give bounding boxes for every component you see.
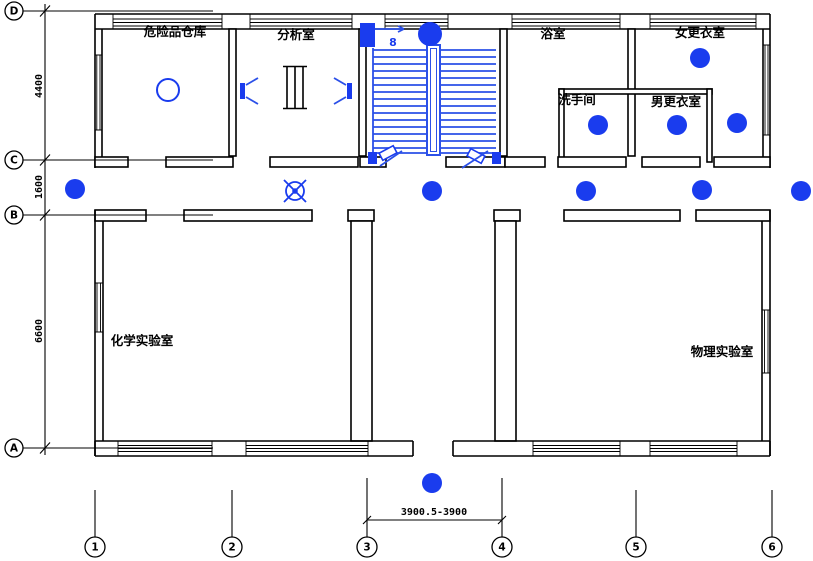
exterior-right-wall-upper: [763, 14, 770, 168]
room-label-women-locker: 女更衣室: [675, 25, 726, 40]
axis-col-label: 4: [498, 542, 505, 554]
pendant-lamp-circle: [157, 79, 179, 101]
room-label-analysis-room: 分析室: [277, 27, 315, 42]
axis-row-label: B: [10, 210, 18, 222]
exterior-left-wall-lower: [95, 210, 103, 456]
panel-circuit-label: 8: [389, 36, 397, 49]
ceiling-lamp-dot: [576, 181, 596, 201]
ceiling-lamp-dot: [667, 115, 687, 135]
axis-left: D C B A 4400 1600 6600: [5, 2, 213, 457]
dim-b-to-a: 6600: [34, 319, 45, 343]
ceiling-lamp-dot: [65, 179, 85, 199]
floor-plan-canvas: 8: [0, 0, 813, 561]
floor-plan-drawing: 8: [0, 0, 813, 561]
axis-row-label: D: [10, 6, 19, 18]
distribution-box: 8: [360, 23, 404, 49]
wall-sconce-left: [240, 78, 258, 104]
dim-axis3-to-axis4: 3900.5-3900: [401, 507, 467, 518]
corridor-north-wall: [95, 157, 770, 167]
exterior-right-wall-lower: [762, 210, 770, 456]
column-symbol: [283, 67, 307, 109]
axis-col-label: 3: [363, 542, 370, 554]
ceiling-lamp-dot: [791, 181, 811, 201]
ceiling-lamp-dot: [422, 181, 442, 201]
ceiling-lamp-dot: [588, 115, 608, 135]
lab-middle-walls: [351, 221, 516, 441]
room-label-bathroom: 浴室: [540, 26, 566, 41]
ceiling-lamp-dot: [692, 180, 712, 200]
room-label-hazard-storage: 危险品仓库: [143, 24, 207, 39]
interior-walls-upper: [229, 29, 712, 162]
axis-col-label: 1: [91, 542, 98, 554]
room-label-men-locker: 男更衣室: [651, 94, 702, 109]
dim-c-to-b: 1600: [34, 175, 45, 199]
room-label-washroom: 洗手间: [558, 92, 596, 107]
room-label-chemistry-lab: 化学实验室: [111, 333, 174, 348]
axis-row-label: C: [10, 155, 18, 167]
room-label-physics-lab: 物理实验室: [691, 344, 754, 359]
axis-col-label: 6: [768, 542, 775, 554]
ceiling-lamp-dot: [690, 48, 710, 68]
ceiling-lamp-dot: [422, 473, 442, 493]
stair-landing-lamp-dot: [418, 22, 442, 46]
axis-col-label: 5: [632, 542, 639, 554]
fan-lamp: [284, 180, 306, 202]
axis-col-label: 2: [228, 542, 235, 554]
dim-d-to-c: 4400: [34, 74, 45, 98]
stair-handrail: [427, 45, 440, 155]
circuit-arrow: [375, 26, 404, 32]
ceiling-lamp-dot: [727, 113, 747, 133]
axis-row-label: A: [10, 443, 19, 455]
wall-sconce-right: [334, 78, 352, 104]
exterior-left-wall-upper: [95, 14, 102, 168]
